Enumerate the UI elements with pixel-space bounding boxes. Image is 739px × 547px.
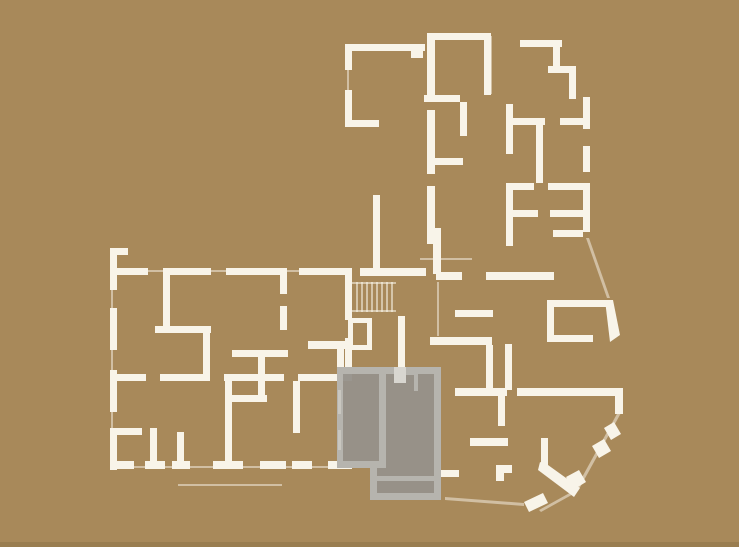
selected-unit-entry-mark — [394, 367, 406, 383]
floor-plan-svg — [0, 0, 739, 547]
bottom-edge-bar — [0, 542, 739, 547]
floor-plan-canvas — [0, 0, 739, 547]
